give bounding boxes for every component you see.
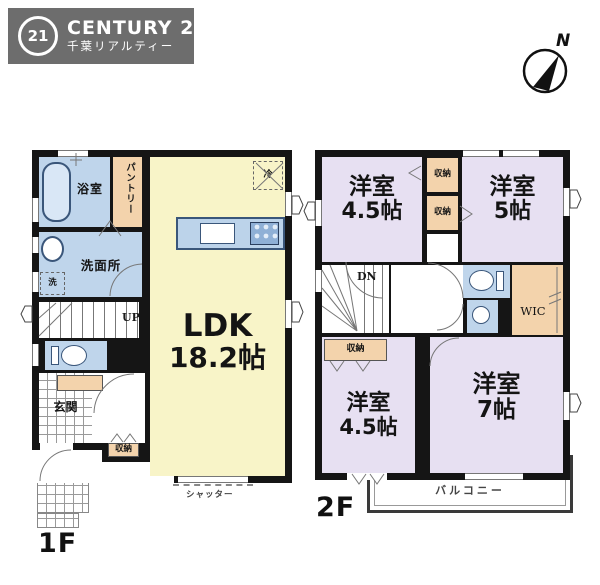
closet-b-label: 収納: [427, 196, 458, 230]
brand-subtitle: 千葉リアルティー: [67, 40, 209, 53]
washer-label: 洗: [41, 273, 64, 294]
room-nw-size: 4.5帖: [342, 200, 403, 224]
window: [463, 150, 499, 157]
window: [32, 272, 39, 292]
dn-label: DN: [357, 270, 377, 283]
window: [315, 200, 322, 226]
room-toilet-1f: [45, 341, 107, 370]
century21-mark-icon: 21: [18, 16, 58, 56]
shutter-line: [173, 484, 253, 486]
room-ne-name: 洋室: [490, 175, 536, 200]
shutter-label: シャッター: [186, 488, 234, 500]
porch-tiles: [38, 478, 88, 512]
sink-2f: [467, 300, 498, 333]
floor2-label: 2F: [316, 492, 355, 523]
porch-step-tiles: [37, 513, 79, 528]
window: [563, 392, 570, 420]
up-label: UP: [122, 311, 140, 324]
ldk-name: LDK: [183, 310, 253, 343]
window: [315, 270, 322, 292]
toilet-tank-icon: [51, 346, 59, 365]
fridge-label: 冷: [254, 162, 282, 189]
toilet-bowl-icon: [469, 270, 494, 291]
room-sw-size: 4.5帖: [339, 416, 397, 439]
room-ne-size: 5帖: [494, 200, 531, 224]
window: [32, 198, 39, 222]
wic-label: WIC: [512, 305, 554, 317]
window: [58, 150, 88, 157]
ldk-size: 18.2帖: [169, 343, 266, 373]
room-pantry: パントリー: [113, 157, 142, 227]
room-se-size: 7帖: [477, 398, 516, 423]
room-west-se: 洋室 7帖: [430, 337, 563, 473]
window: [285, 300, 292, 328]
compass: N: [518, 30, 580, 96]
closet-a-label: 収納: [427, 158, 458, 192]
room-ldk: 冷 LDK 18.2帖: [150, 157, 285, 476]
window: [563, 188, 570, 216]
basin-icon: [41, 236, 64, 262]
floor1-label: 1F: [38, 528, 77, 559]
storage-1f: 収納: [108, 443, 139, 457]
room-washroom: 洗面所 洗: [39, 232, 142, 297]
closet-a: 収納: [427, 158, 458, 192]
kitchen-sink-icon: [200, 223, 235, 244]
fridge-icon: 冷: [253, 161, 283, 190]
balcony-door-opening: [347, 473, 387, 480]
bath-label: 浴室: [71, 183, 109, 196]
toilet-tank-icon: [496, 271, 504, 291]
room-sw-name: 洋室: [346, 392, 390, 416]
north-label: N: [556, 31, 570, 51]
closet-c: 収納: [324, 339, 387, 361]
closet-c-label: 収納: [325, 340, 386, 360]
shoe-cabinet: [57, 375, 103, 391]
window: [32, 237, 39, 253]
balcony-label: バルコニー: [370, 482, 570, 498]
floor2-plan: 洋室 4.5帖 収納 収納 洋室 5帖 DN: [315, 150, 570, 480]
basin-icon: [472, 306, 490, 324]
room-nw-name: 洋室: [349, 175, 395, 200]
bathtub-icon: [42, 162, 71, 222]
entrance-label: 玄関: [41, 401, 90, 414]
floor1-plan: 浴室 パントリー 冷 LDK 18.2帖 洗面所: [32, 150, 292, 483]
kitchen-counter: [176, 217, 285, 250]
entrance-door-opening: [40, 443, 73, 450]
hall-2f: [391, 265, 463, 333]
room-se-name: 洋室: [473, 372, 521, 398]
storage-1f-label: 収納: [109, 444, 138, 456]
ldk-label: LDK 18.2帖: [150, 310, 285, 374]
toilet-bowl-icon: [61, 345, 87, 366]
room-toilet-2f: [463, 265, 510, 298]
window: [285, 192, 292, 216]
window: [503, 150, 539, 157]
century21-logo: 21 CENTURY 21 千葉リアルティー: [8, 8, 194, 64]
pantry-label: パントリー: [122, 162, 136, 215]
stairs-down: [322, 265, 389, 333]
window: [465, 473, 523, 480]
stove-icon: [250, 222, 279, 245]
compass-needle-icon: [533, 55, 559, 91]
room-bath: 浴室: [39, 157, 110, 227]
mark-text: 21: [28, 27, 49, 45]
window-shutter: [178, 476, 248, 483]
room-west-ne: 洋室 5帖: [462, 157, 563, 262]
room-west-nw: 洋室 4.5帖: [322, 157, 422, 262]
brand-text: CENTURY 21: [67, 18, 209, 40]
room-wic: WIC: [512, 265, 563, 335]
washroom-label: 洗面所: [63, 259, 139, 273]
floorplan-page: 21 CENTURY 21 千葉リアルティー N 浴室 パントリー: [0, 0, 600, 585]
closet-b: 収納: [427, 196, 458, 230]
window: [32, 344, 39, 366]
